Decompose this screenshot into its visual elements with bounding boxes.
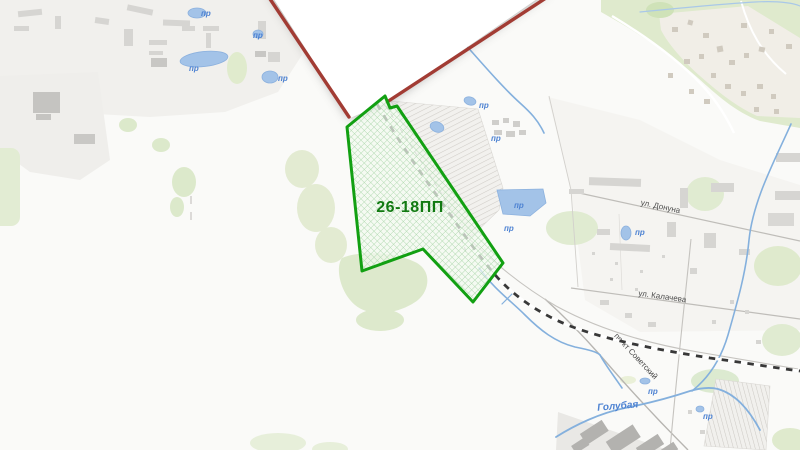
pond-label: пр [201, 9, 211, 18]
pond-label: пр [253, 31, 263, 40]
pond-label: пр [479, 101, 489, 110]
pond-label: пр [189, 64, 199, 73]
pond-label: пр [491, 134, 501, 143]
pond-label: пр [703, 412, 713, 421]
project-area-label: 26-18ПП [376, 199, 443, 216]
map-canvas[interactable]: ул. Донуна ул. Калачева пр-кт Советский … [0, 0, 800, 450]
pond-label: пр [278, 74, 288, 83]
pond-label: пр [648, 387, 658, 396]
pond-label: пр [504, 224, 514, 233]
pond-label: пр [635, 228, 645, 237]
pond-label: пр [514, 201, 524, 210]
map-viewport[interactable]: ул. Донуна ул. Калачева пр-кт Советский … [0, 0, 800, 450]
